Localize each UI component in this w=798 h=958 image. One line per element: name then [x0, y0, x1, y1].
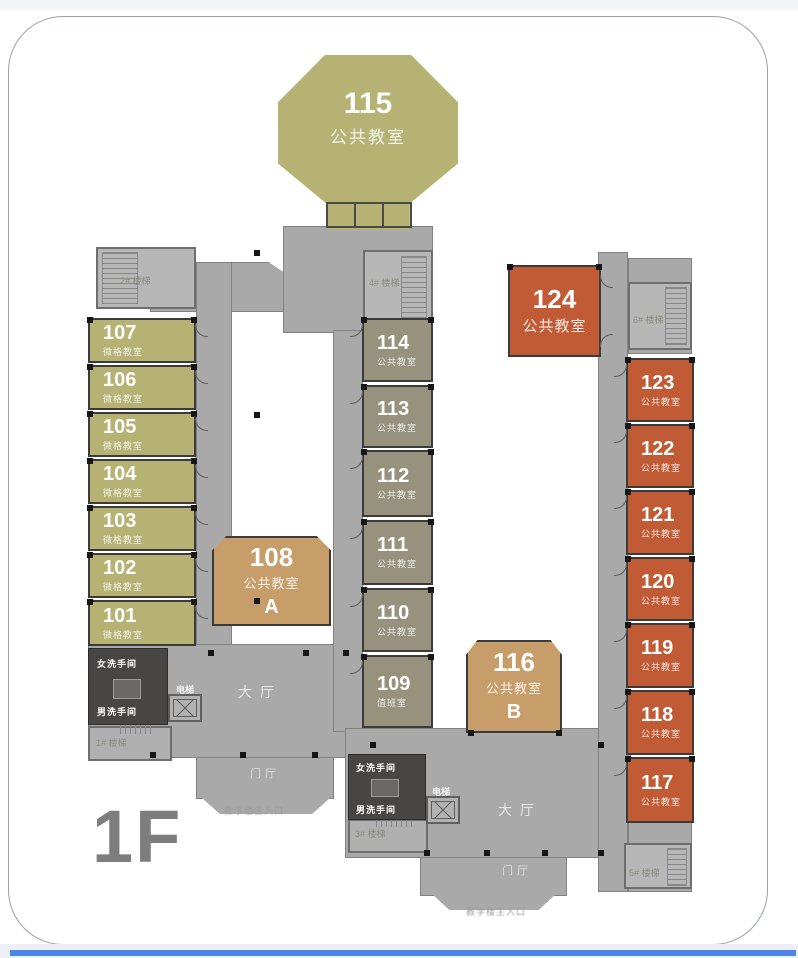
door-arc-icon	[614, 696, 627, 709]
room-number: 110	[377, 603, 431, 623]
room-label: 微格教室	[103, 580, 194, 593]
room-label: 公共教室	[243, 573, 299, 592]
room-label: 公共教室	[377, 355, 431, 368]
column-dot	[343, 650, 349, 656]
column-dot	[370, 742, 376, 748]
restroom-fixture	[371, 779, 399, 797]
foyer-east	[420, 857, 567, 896]
room-label: 微格教室	[103, 392, 194, 405]
elevator-icon	[168, 694, 202, 722]
room-107[interactable]: 107 微格教室	[88, 318, 196, 363]
entrance-caption-east: 教学楼主入口	[466, 905, 526, 918]
room-label: 值班室	[377, 696, 431, 709]
stairs-icon	[667, 848, 687, 886]
room-111[interactable]: 111 公共教室	[362, 520, 433, 585]
room-104[interactable]: 104 微格教室	[88, 459, 196, 504]
column-dot	[208, 650, 214, 656]
floorplan-viewer: 2# 楼梯 4# 楼梯 6# 楼梯 1# 楼梯 3# 楼梯 5# 楼梯 115 …	[0, 0, 798, 958]
room-label: 微格教室	[103, 628, 194, 641]
room-117[interactable]: 117 公共教室	[626, 757, 694, 823]
room-106[interactable]: 106 微格教室	[88, 365, 196, 410]
room-label: 公共教室	[330, 123, 406, 148]
room-number: 105	[103, 417, 194, 437]
column-dot	[424, 850, 430, 856]
room-number: 123	[641, 373, 692, 393]
women-restroom-label: 女洗手间	[97, 657, 137, 670]
column-dot	[150, 752, 156, 758]
door-arc-icon	[350, 661, 363, 674]
room-label: 公共教室	[522, 315, 586, 336]
room-118[interactable]: 118 公共教室	[626, 690, 694, 755]
foyer-label-west: 门厅	[250, 765, 280, 781]
room-number: 124	[533, 286, 576, 312]
room-letter: A	[264, 596, 278, 619]
room-number: 117	[641, 773, 692, 793]
room-label: 公共教室	[641, 660, 692, 673]
column-dot	[598, 850, 604, 856]
room-101[interactable]: 101 微格教室	[88, 600, 196, 646]
room-label: 微格教室	[103, 439, 194, 452]
room-119[interactable]: 119 公共教室	[626, 623, 694, 688]
room-number: 102	[103, 558, 194, 578]
room-label: 公共教室	[377, 625, 431, 638]
restroom-block-west: 女洗手间 男洗手间	[88, 648, 168, 725]
entrance-caption-west: 教学楼主入口	[224, 804, 284, 817]
floor-plan: 2# 楼梯 4# 楼梯 6# 楼梯 1# 楼梯 3# 楼梯 5# 楼梯 115 …	[0, 0, 798, 958]
room-number: 122	[641, 439, 692, 459]
room-number: 103	[103, 511, 194, 531]
room-124[interactable]: 124 公共教室	[508, 265, 601, 357]
room-number: 115	[344, 89, 392, 119]
stair-label-1: 1# 楼梯	[96, 736, 127, 749]
room-120[interactable]: 120 公共教室	[626, 557, 694, 621]
lobby-label-east: 大厅	[498, 800, 542, 820]
room-110[interactable]: 110 公共教室	[362, 588, 433, 652]
room-114[interactable]: 114 公共教室	[362, 318, 433, 382]
women-restroom-label: 女洗手间	[356, 761, 396, 774]
door-arc-icon	[614, 763, 627, 776]
restroom-fixture	[113, 679, 141, 699]
stairs-icon	[665, 287, 687, 345]
men-restroom-label: 男洗手间	[97, 705, 137, 718]
room-102[interactable]: 102 微格教室	[88, 553, 196, 598]
room-number: 120	[641, 572, 692, 592]
stair-label-5: 5# 楼梯	[629, 866, 660, 879]
room-109[interactable]: 109 值班室	[362, 655, 433, 728]
door-arc-icon	[350, 594, 363, 607]
men-restroom-label: 男洗手间	[356, 803, 396, 816]
column-dot	[303, 650, 309, 656]
room-113[interactable]: 113 公共教室	[362, 385, 433, 448]
restroom-block-east: 女洗手间 男洗手间	[348, 754, 426, 820]
room-number: 107	[103, 323, 194, 343]
room-label: 公共教室	[641, 461, 692, 474]
stair-label-6: 6# 楼梯	[633, 313, 664, 326]
door-arc-icon	[614, 430, 627, 443]
door-arc-icon	[350, 526, 363, 539]
column-dot	[254, 412, 260, 418]
room-number: 119	[641, 638, 692, 658]
room-number: 118	[641, 705, 692, 725]
door-arc-icon	[614, 364, 627, 377]
room-label: 公共教室	[641, 594, 692, 607]
room-letter: B	[507, 701, 521, 724]
column-dot	[468, 730, 474, 736]
room-122[interactable]: 122 公共教室	[626, 424, 694, 488]
stair-label-2: 2# 楼梯	[120, 274, 151, 287]
foyer-label-east: 门厅	[502, 862, 532, 878]
room-label: 公共教室	[641, 527, 692, 540]
elevator-icon	[426, 796, 460, 824]
column-dot	[484, 850, 490, 856]
room-label: 公共教室	[486, 678, 542, 697]
room-112[interactable]: 112 公共教室	[362, 450, 433, 517]
room-123[interactable]: 123 公共教室	[626, 358, 694, 422]
door-arc-icon	[614, 496, 627, 509]
column-dot	[254, 598, 260, 604]
room-number: 101	[103, 606, 194, 626]
column-dot	[542, 850, 548, 856]
door-arc-icon	[614, 629, 627, 642]
column-dot	[556, 730, 562, 736]
column-dot	[240, 752, 246, 758]
column-dot	[254, 250, 260, 256]
room-number: 109	[377, 674, 431, 694]
room-label: 微格教室	[103, 345, 194, 358]
room-number: 121	[641, 505, 692, 525]
room-label: 公共教室	[641, 727, 692, 740]
room-116[interactable]: 116 公共教室 B	[466, 640, 562, 733]
room-number: 114	[377, 333, 431, 353]
door-arc-icon	[350, 391, 363, 404]
door-arc-icon	[350, 324, 363, 337]
lobby-label-west: 大厅	[238, 682, 282, 702]
door-arc-icon	[350, 456, 363, 469]
column-dot	[312, 752, 318, 758]
room-label: 公共教室	[641, 795, 692, 808]
room-121[interactable]: 121 公共教室	[626, 490, 694, 555]
room-number: 112	[377, 466, 431, 486]
bottom-accent-line	[10, 950, 796, 956]
room-label: 微格教室	[103, 486, 194, 499]
room-label: 微格教室	[103, 533, 194, 546]
room-number: 106	[103, 370, 194, 390]
room-number: 111	[377, 535, 431, 555]
stair-label-3: 3# 楼梯	[355, 827, 386, 840]
door-arc-icon	[614, 563, 627, 576]
room-label: 公共教室	[377, 488, 431, 501]
room-number: 104	[103, 464, 194, 484]
room-108[interactable]: 108 公共教室 A	[212, 536, 331, 626]
room-number: 108	[250, 544, 293, 570]
column-dot	[598, 742, 604, 748]
room-label: 公共教室	[377, 421, 431, 434]
room-103[interactable]: 103 微格教室	[88, 506, 196, 551]
room-105[interactable]: 105 微格教室	[88, 412, 196, 457]
room-number: 116	[493, 649, 535, 675]
room-label: 公共教室	[641, 395, 692, 408]
room-number: 113	[377, 399, 431, 419]
room-label: 公共教室	[377, 557, 431, 570]
stair-label-4: 4# 楼梯	[369, 276, 400, 289]
floor-label: 1F	[92, 800, 182, 874]
vestibule-cells	[326, 202, 410, 228]
